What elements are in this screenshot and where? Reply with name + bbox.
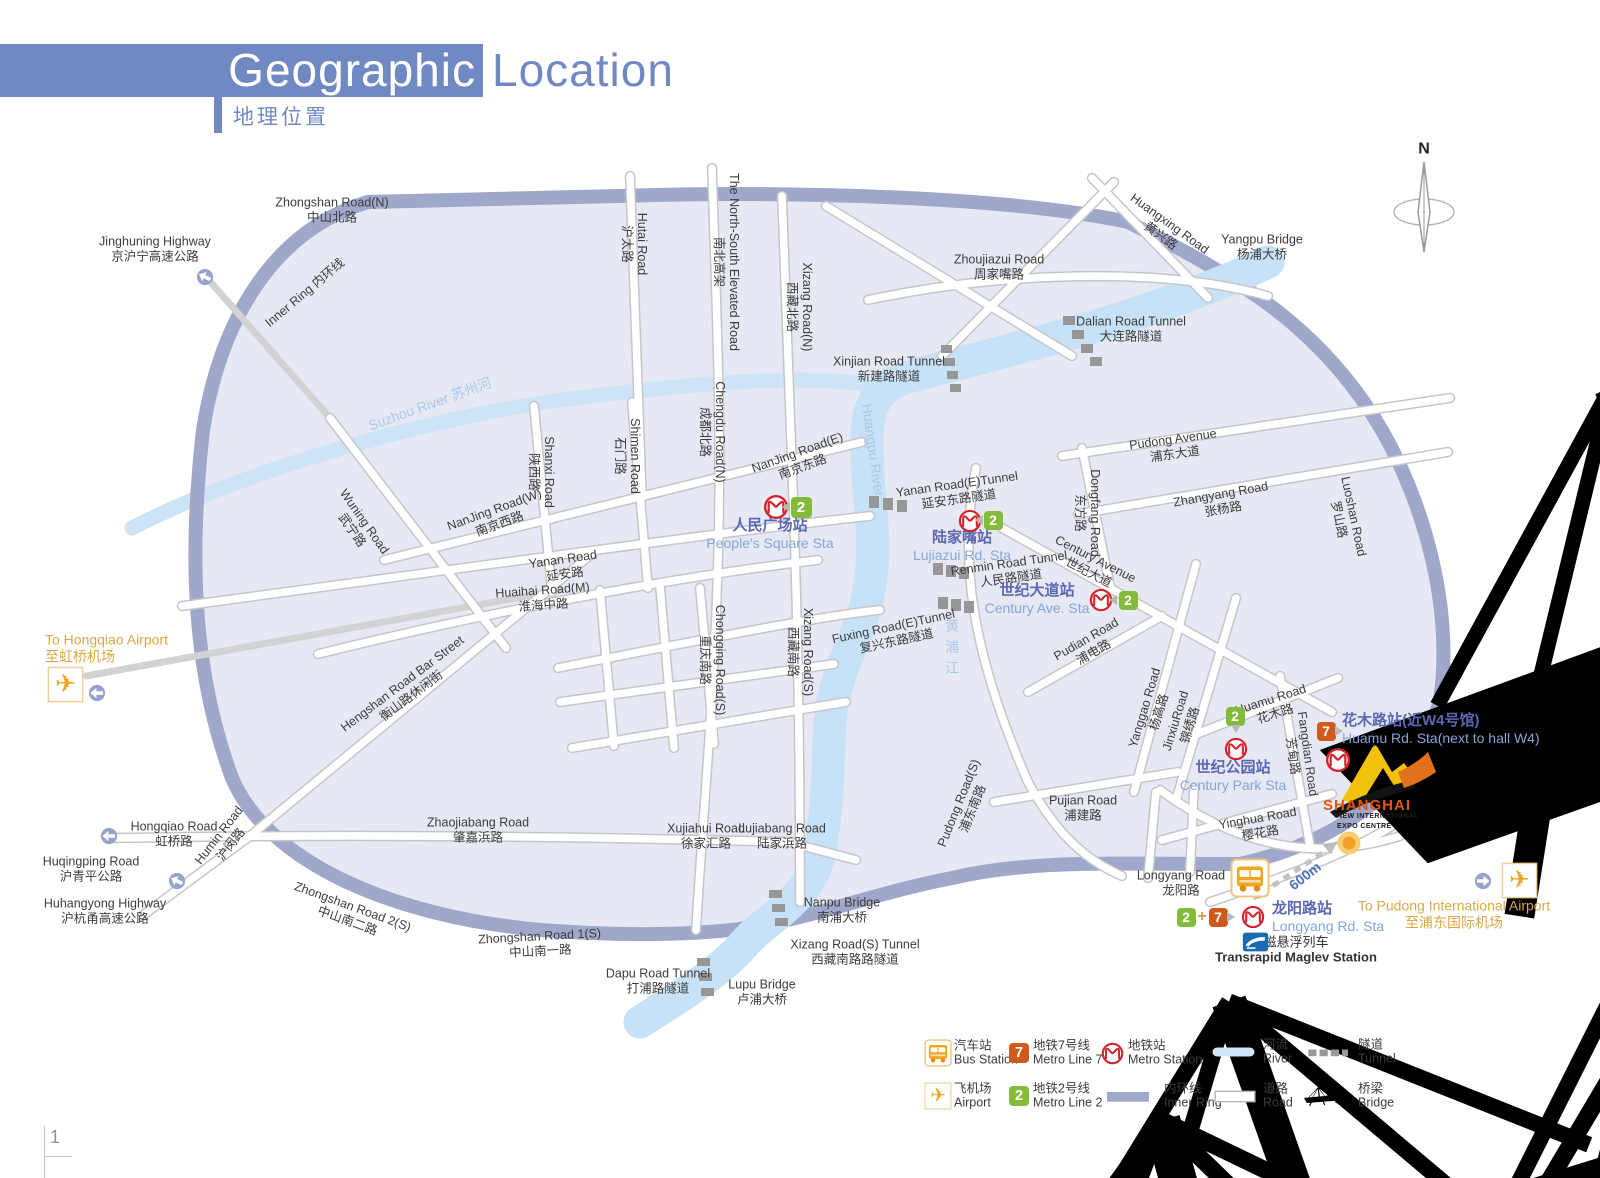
pointer-triangle: [1227, 912, 1235, 922]
legend-metro-line7-badge: 7: [1009, 1043, 1029, 1063]
legend-river-swatch: [1211, 1044, 1256, 1060]
pointer-triangle: [975, 515, 983, 525]
metro-line2-badge: 2: [791, 497, 812, 518]
legend-item-label: 地铁站Metro Station: [1128, 1039, 1202, 1067]
metro-line2-badge: 2: [1177, 908, 1196, 927]
bus-station-icon: [1230, 858, 1270, 898]
metro-line7-badge: 7: [1209, 908, 1228, 927]
legend-item-label: 地铁7号线Metro Line 7: [1033, 1039, 1102, 1067]
pointer-triangle: [1109, 595, 1117, 605]
legend-airport-icon: [924, 1082, 952, 1110]
legend-item-label: 桥梁Bridge: [1358, 1082, 1394, 1110]
pointer-triangle: [1335, 726, 1343, 736]
crop-mark-horizontal: [44, 1156, 71, 1157]
metro-line2-badge: 2: [1119, 591, 1138, 610]
legend-inner-ring-swatch: [1104, 1089, 1152, 1104]
metro-line7-badge: 7: [1317, 722, 1336, 741]
direction-arrow-icon: [85, 681, 109, 705]
metro-line2-badge: 2: [1226, 707, 1245, 726]
metro-station-icon: [1324, 746, 1352, 774]
pointer-triangle: [1231, 725, 1241, 733]
legend-item-label: 飞机场Airport: [954, 1082, 992, 1110]
legend-item-label: 地铁2号线Metro Line 2: [1033, 1082, 1102, 1110]
direction-arrow-icon: [97, 824, 121, 848]
airport-icon: [1501, 862, 1538, 899]
airport-icon: [47, 666, 84, 703]
crop-mark-vertical: [44, 1126, 45, 1178]
metro-line2-badge: 2: [984, 511, 1003, 530]
legend-item-label: 隧道Tunnel: [1358, 1038, 1396, 1066]
direction-arrow-icon: [1471, 869, 1495, 893]
legend-metro-station-icon: [1100, 1041, 1125, 1066]
legend-item-label: 道路Road: [1263, 1082, 1293, 1110]
metro-station-icon: [1240, 904, 1266, 930]
maglev-icon: [1242, 932, 1269, 952]
expo-location-dot: [1340, 834, 1358, 852]
pointer-triangle: [782, 502, 790, 512]
page-number: 1: [50, 1127, 60, 1148]
metro-station-icon: [1223, 736, 1249, 762]
page: Geographic Location 地理位置 ✈: [0, 0, 1600, 1178]
legend-bridge-icon: [1304, 1084, 1351, 1108]
compass-icon: [1394, 162, 1454, 252]
legend-road-swatch: [1213, 1088, 1257, 1105]
plus-separator: +: [1197, 908, 1206, 926]
legend-metro-line2-badge: 2: [1009, 1086, 1029, 1106]
legend-tunnel-swatch: [1305, 1045, 1352, 1060]
map-canvas: ✈: [0, 0, 1600, 1178]
legend-item-label: 河流River: [1263, 1038, 1292, 1066]
legend-bus-station-icon: [924, 1039, 952, 1067]
